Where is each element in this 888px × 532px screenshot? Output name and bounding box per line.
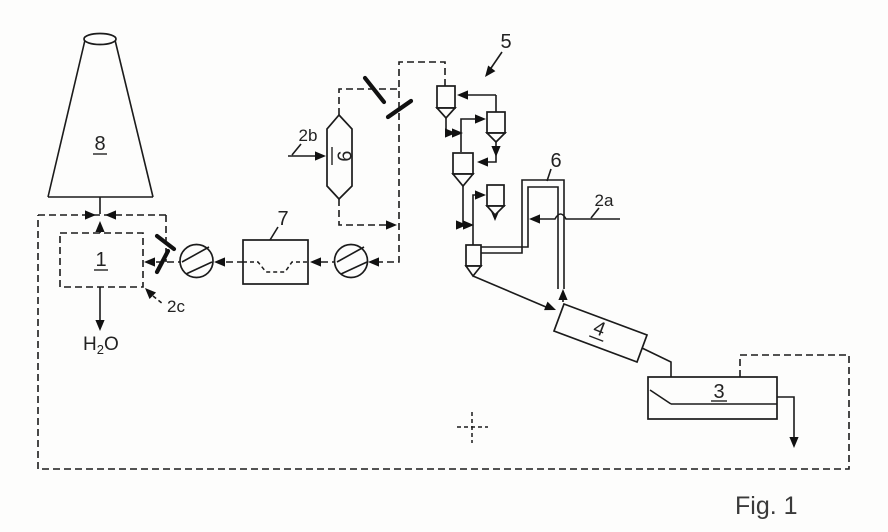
vessel-9-label: 9 bbox=[333, 150, 355, 161]
vessel-9: 9 2b bbox=[288, 115, 397, 230]
kiln-feed-arrow bbox=[544, 302, 558, 315]
process-flow-diagram: 8 1 H2O 2c bbox=[0, 0, 888, 532]
kiln-exhaust-arrow bbox=[558, 289, 567, 300]
vessel9-top-branch bbox=[339, 89, 397, 115]
h2o-label: H2O bbox=[83, 334, 119, 357]
fan-left bbox=[180, 245, 213, 278]
cooler-3: 3 bbox=[648, 377, 799, 448]
cyclone-3 bbox=[453, 153, 473, 186]
fan-right bbox=[335, 245, 368, 278]
cyclone-4 bbox=[487, 185, 504, 215]
2c-label: 2c bbox=[167, 297, 185, 316]
heat-exchanger-7: 7 bbox=[243, 208, 308, 284]
duct-label: 6 bbox=[550, 150, 561, 172]
center-mark bbox=[457, 412, 488, 443]
product-discharge-arrow bbox=[789, 437, 798, 448]
2a-label: 2a bbox=[595, 191, 614, 210]
2b-arrow bbox=[315, 151, 326, 160]
preheater-label: 5 bbox=[500, 31, 511, 53]
cyclone-5 bbox=[466, 245, 481, 276]
kiln-4: 4 bbox=[473, 276, 676, 391]
fuel-line bbox=[540, 214, 620, 219]
water-arrow bbox=[95, 320, 104, 331]
stack-label: 8 bbox=[94, 133, 105, 155]
stack-mouth bbox=[84, 34, 116, 45]
unit-1-label: 1 bbox=[95, 249, 106, 271]
cyclone-1 bbox=[437, 86, 455, 118]
stack-8: 8 bbox=[48, 34, 153, 215]
cooler-label: 3 bbox=[713, 381, 724, 403]
damper-vessel9-top bbox=[365, 78, 384, 102]
2a-arrow bbox=[529, 214, 540, 223]
preheater-5: 5 bbox=[437, 31, 512, 276]
2b-label: 2b bbox=[299, 126, 318, 145]
recirculation-loop bbox=[38, 215, 849, 469]
main-exhaust-line bbox=[379, 62, 445, 262]
figure-caption: Fig. 1 bbox=[735, 492, 798, 520]
riser-duct-6: 6 2a bbox=[481, 150, 620, 289]
patent-figure-page: 8 1 H2O 2c bbox=[0, 0, 888, 532]
cyclone-2 bbox=[487, 112, 505, 142]
vessel9-bottom-branch bbox=[339, 199, 386, 225]
heat-exchanger-label: 7 bbox=[277, 208, 288, 230]
